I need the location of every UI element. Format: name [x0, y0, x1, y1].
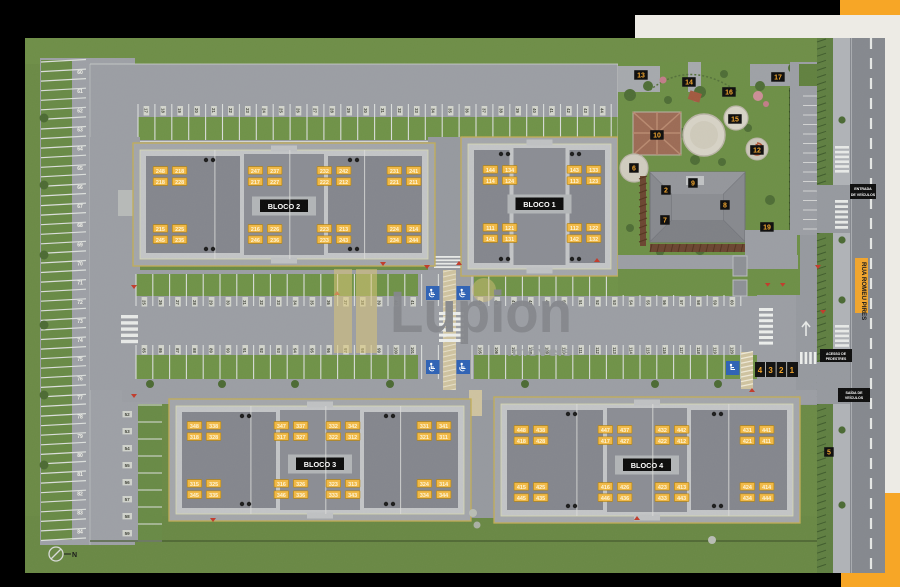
svg-text:N: N — [72, 552, 77, 559]
